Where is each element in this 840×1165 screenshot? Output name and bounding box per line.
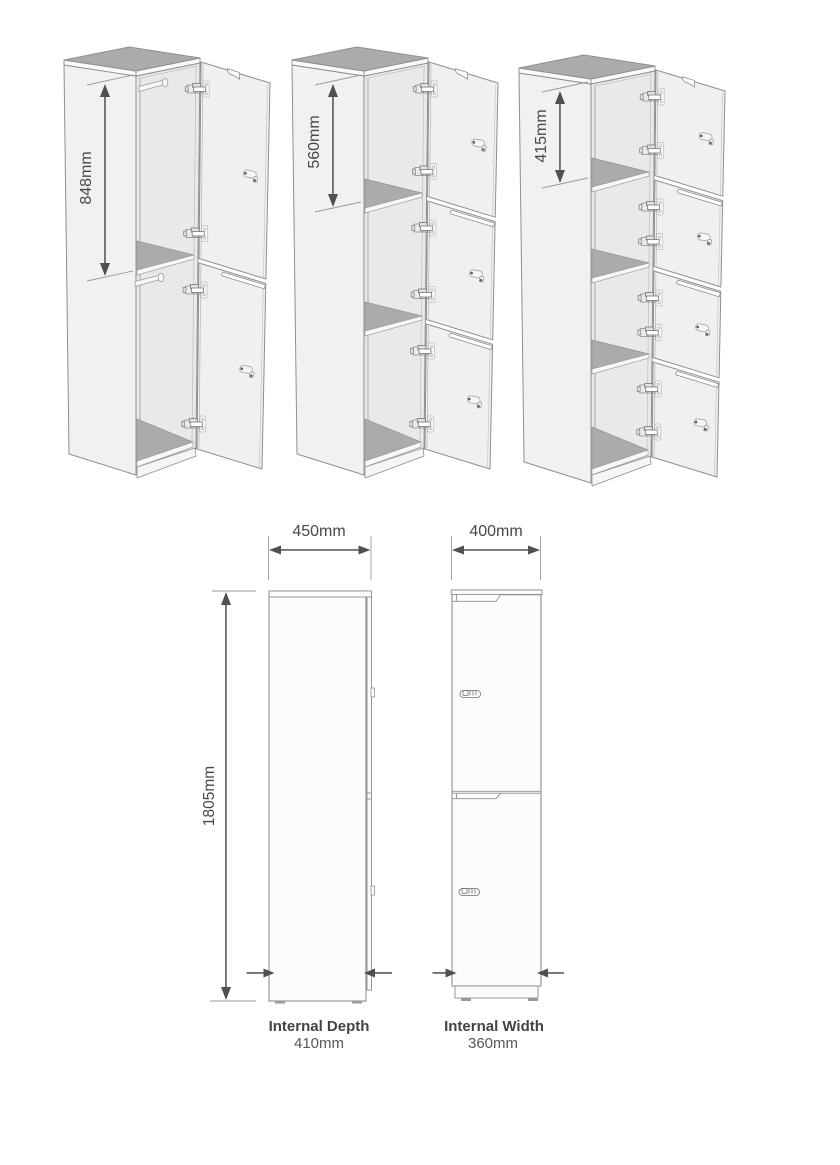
svg-text:Internal Width: Internal Width [444,1018,544,1035]
svg-text:360mm: 360mm [468,1035,518,1052]
svg-text:415mm: 415mm [533,109,550,162]
svg-text:450mm: 450mm [292,523,345,540]
svg-text:1805mm: 1805mm [201,766,218,826]
svg-text:560mm: 560mm [306,115,323,168]
svg-text:410mm: 410mm [294,1035,344,1052]
svg-text:848mm: 848mm [78,151,95,204]
svg-text:Internal Depth: Internal Depth [269,1018,370,1035]
svg-text:400mm: 400mm [469,523,522,540]
